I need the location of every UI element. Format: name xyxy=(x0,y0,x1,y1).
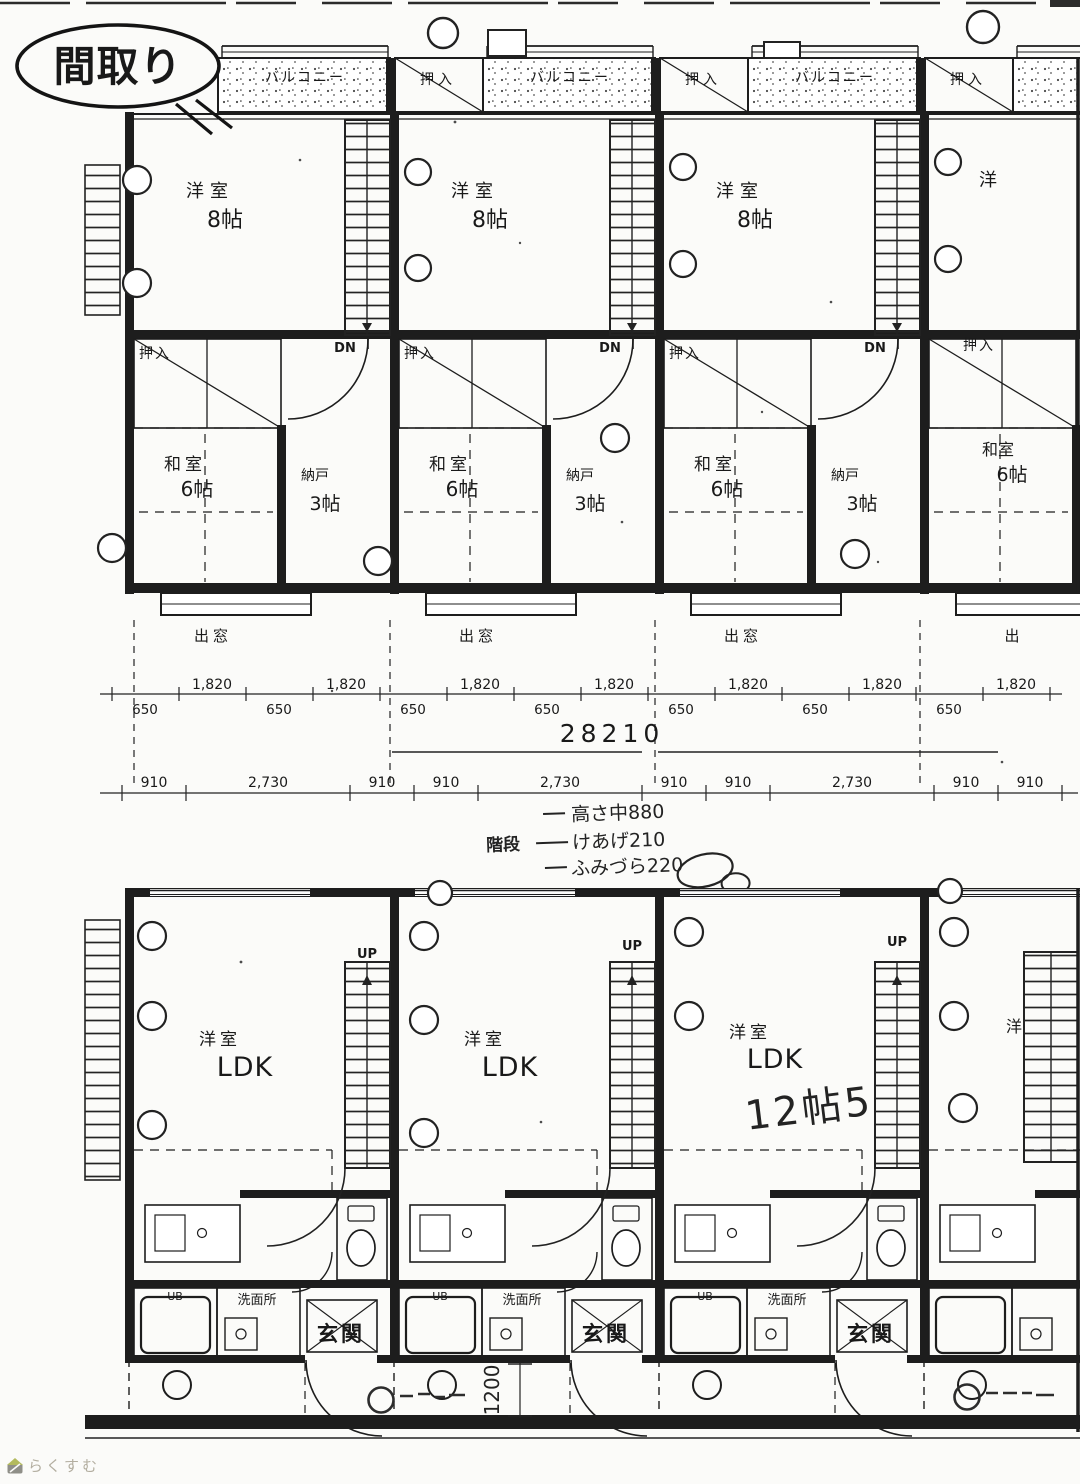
balcony-label-1: バルコニー xyxy=(265,70,345,86)
handwritten-room-size: 12帖5 xyxy=(743,1078,876,1139)
stair-dn-label-3: DN xyxy=(864,341,886,356)
dim-650-3: 650 xyxy=(400,702,426,718)
dim-650-4: 650 xyxy=(534,702,560,718)
floor-plan-canvas: バルコニー バルコニー バルコニー 押入 押入 押入 洋室 8帖 洋室 8帖 洋… xyxy=(0,0,1080,1484)
watermark: らくすむ xyxy=(7,1455,100,1476)
staircase-upper-2 xyxy=(610,120,655,335)
ldk-label-2: LDK xyxy=(482,1052,539,1083)
room-label-2: 洋室 xyxy=(451,181,499,202)
washroom-label-2: 洗面所 xyxy=(502,1293,541,1308)
entrance-label-1: 玄関 xyxy=(317,1322,365,1346)
staircase-upper-3 xyxy=(875,120,920,335)
washitsu-label-4: 和室 xyxy=(982,440,1014,459)
dim-1820-1: 1,820 xyxy=(192,677,232,693)
mid-closet-label-4: 押入 xyxy=(963,338,995,354)
stair-dn-label-2: DN xyxy=(599,341,621,356)
unit-bath-label-2: UB xyxy=(432,1290,448,1303)
bay-window-label-1: 出窓 xyxy=(194,627,232,645)
floor-plan-upper: バルコニー バルコニー バルコニー 押入 押入 押入 洋室 8帖 洋室 8帖 洋… xyxy=(85,11,1080,645)
note-line-3: ふみづら220 xyxy=(571,854,684,880)
floor-plan-lower: 洋室 LDK 洋室 LDK 洋室 LDK 洋 UP UP UP UB UB UB… xyxy=(85,879,1080,1438)
dim-1820-2: 1,820 xyxy=(326,677,366,693)
title-text: 間取り xyxy=(53,42,182,91)
dim-650-2: 650 xyxy=(266,702,292,718)
upper-unit-linework xyxy=(85,11,1080,615)
dim-910-2: 910 xyxy=(369,775,396,791)
handwritten-porch-dim: 1200 xyxy=(480,1365,504,1416)
dimension-rows xyxy=(100,620,1078,801)
top-closet-label-2: 押入 xyxy=(685,72,721,88)
stair-up-label-1: UP xyxy=(357,947,377,962)
washitsu-size-2: 6帖 xyxy=(446,477,479,501)
room-label-4: 洋 xyxy=(979,170,997,191)
washroom-label-1: 洗面所 xyxy=(237,1293,276,1308)
dim-1820-6: 1,820 xyxy=(862,677,902,693)
title-balloon: 間取り xyxy=(17,25,232,134)
storage-label-1: 納戸 xyxy=(301,468,329,484)
staircase-lower-1 xyxy=(267,962,390,1246)
washitsu-label-1: 和室 xyxy=(164,455,206,475)
storage-size-1: 3帖 xyxy=(309,493,340,515)
dim-1820-7: 1,820 xyxy=(996,677,1036,693)
dim-910-5: 910 xyxy=(725,775,752,791)
dim-650-6: 650 xyxy=(802,702,828,718)
room-size-1: 8帖 xyxy=(207,208,243,233)
mid-closet-label-1: 押入 xyxy=(139,346,171,362)
watermark-brand: らくすむ xyxy=(28,1455,100,1476)
ldk-label-3: LDK xyxy=(747,1044,804,1075)
dim-910-7: 910 xyxy=(1017,775,1044,791)
bay-window-label-3: 出窓 xyxy=(724,627,762,645)
entrance-label-2: 玄関 xyxy=(582,1322,630,1346)
dim-2730-3: 2,730 xyxy=(832,775,872,791)
house-icon xyxy=(7,1458,23,1474)
washroom-label-3: 洗面所 xyxy=(767,1293,806,1308)
bay-window-label-4: 出 xyxy=(1004,627,1019,645)
storage-label-2: 納戸 xyxy=(566,468,594,484)
unit-bath-label-1: UB xyxy=(167,1290,183,1303)
ldk-room-label-1: 洋室 xyxy=(199,1030,241,1050)
top-closet-label-3: 押入 xyxy=(950,72,986,88)
storage-size-3: 3帖 xyxy=(846,493,877,515)
storage-label-3: 納戸 xyxy=(831,468,859,484)
mid-closet-label-2: 押入 xyxy=(404,346,436,362)
washitsu-size-1: 6帖 xyxy=(181,477,214,501)
bay-window-label-2: 出窓 xyxy=(459,627,497,645)
ldk-room-label-3: 洋室 xyxy=(729,1023,771,1043)
staircase-lower-2 xyxy=(532,962,655,1246)
handwritten-stair-notes: 階段 高さ中880 けあげ210 ふみづら220 xyxy=(485,798,750,902)
staircase-upper-1 xyxy=(345,120,390,335)
dim-910-1: 910 xyxy=(141,775,168,791)
stamp-left xyxy=(369,1388,466,1413)
note-header: 階段 xyxy=(486,834,521,856)
balcony-label-2: バルコニー xyxy=(530,70,610,86)
entrance-label-3: 玄関 xyxy=(847,1322,895,1346)
washitsu-size-3: 6帖 xyxy=(711,477,744,501)
washitsu-label-2: 和室 xyxy=(429,455,471,475)
washitsu-size-4: 6帖 xyxy=(996,464,1027,486)
ldk-label-1: LDK xyxy=(217,1052,274,1083)
dim-910-3: 910 xyxy=(433,775,460,791)
stair-dn-label-1: DN xyxy=(334,341,356,356)
room-size-2: 8帖 xyxy=(472,208,508,233)
dim-1820-4: 1,820 xyxy=(594,677,634,693)
dim-1820-3: 1,820 xyxy=(460,677,500,693)
room-size-3: 8帖 xyxy=(737,208,773,233)
room-label-3: 洋室 xyxy=(716,181,764,202)
dim-2730-2: 2,730 xyxy=(540,775,580,791)
lower-unit-linework xyxy=(85,888,1080,1438)
dim-650-1: 650 xyxy=(132,702,158,718)
unit-bath-label-3: UB xyxy=(697,1290,713,1303)
stair-up-label-2: UP xyxy=(622,939,642,954)
note-line-2: けあげ210 xyxy=(572,829,666,854)
balcony-label-3: バルコニー xyxy=(795,70,875,86)
dim-1820-5: 1,820 xyxy=(728,677,768,693)
scanned-floor-plan-page: バルコニー バルコニー バルコニー 押入 押入 押入 洋室 8帖 洋室 8帖 洋… xyxy=(0,0,1080,1484)
mid-closet-label-3: 押入 xyxy=(669,346,701,362)
porch-dim-ticks xyxy=(508,1362,532,1418)
ldk-room-label-2: 洋室 xyxy=(464,1030,506,1050)
dim-total-width: 28210 xyxy=(560,719,665,748)
dim-650-5: 650 xyxy=(668,702,694,718)
washitsu-label-3: 和室 xyxy=(694,455,736,475)
ldk-room-label-4: 洋 xyxy=(1006,1017,1022,1036)
note-line-1: 高さ中880 xyxy=(571,801,665,826)
dim-2730-1: 2,730 xyxy=(248,775,288,791)
stair-up-label-3: UP xyxy=(887,935,907,950)
dim-910-6: 910 xyxy=(953,775,980,791)
dim-650-7: 650 xyxy=(936,702,962,718)
dim-910-4: 910 xyxy=(661,775,688,791)
storage-size-2: 3帖 xyxy=(574,493,605,515)
top-closet-label-1: 押入 xyxy=(420,72,456,88)
stamp-right xyxy=(955,1385,1055,1410)
room-label-1: 洋室 xyxy=(186,181,234,202)
